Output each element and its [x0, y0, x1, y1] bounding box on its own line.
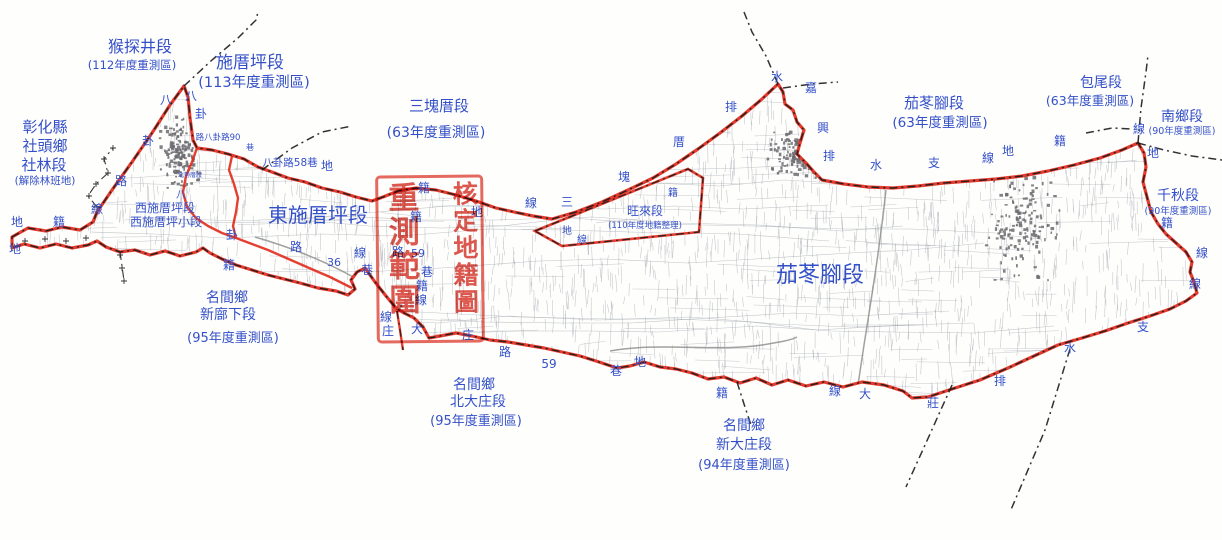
- town-block: [787, 151, 789, 154]
- town-block: [1017, 248, 1019, 251]
- town-block: [799, 160, 801, 164]
- town-block: [811, 158, 813, 161]
- town-block: [808, 138, 811, 141]
- town-block: [778, 158, 781, 160]
- boundary-annotation-char: 線: [354, 245, 366, 260]
- town-block: [1033, 176, 1037, 180]
- town-block: [1023, 228, 1026, 231]
- town-block: [172, 151, 174, 153]
- town-block: [364, 306, 367, 309]
- town-block: [184, 148, 186, 151]
- town-block: [1006, 247, 1008, 250]
- town-block: [1047, 224, 1050, 226]
- town-block: [188, 143, 191, 146]
- town-block: [1036, 241, 1039, 244]
- boundary-annotation-char: 線: [1133, 121, 1145, 136]
- town-block: [372, 320, 375, 322]
- town-block: [1035, 245, 1038, 249]
- town-block: [377, 325, 379, 327]
- town-block: [1034, 201, 1036, 203]
- town-block: [995, 227, 997, 231]
- label-xishicuoping-subsection: 西施厝坪小段: [130, 214, 202, 229]
- town-block: [809, 134, 812, 137]
- boundary-annotation-char: 巷: [421, 265, 433, 279]
- boundary-annotation-char: 水: [870, 158, 882, 172]
- town-block: [400, 304, 402, 307]
- town-block: [777, 146, 780, 149]
- town-block: [803, 145, 806, 148]
- town-block: [176, 130, 179, 132]
- town-block: [186, 161, 189, 164]
- town-block: [808, 142, 810, 144]
- town-block: [798, 168, 802, 171]
- town-block: [160, 145, 163, 149]
- town-block: [820, 147, 823, 150]
- town-block: [1041, 226, 1044, 228]
- town-block: [797, 165, 799, 168]
- parcel-fabric: [39, 70, 1222, 420]
- town-block: [1031, 198, 1034, 200]
- town-block: [1059, 210, 1061, 212]
- label-road-bagua90-lane: 巷: [246, 143, 254, 152]
- town-block: [786, 138, 789, 140]
- boundary-annotation-char: 路: [499, 344, 511, 359]
- town-block: [166, 174, 168, 176]
- town-block: [166, 130, 169, 133]
- boundary-annotation-char: 籍: [416, 278, 428, 293]
- town-block: [403, 331, 406, 334]
- boundary-annotation-char: 興: [817, 121, 829, 135]
- town-block: [802, 150, 804, 152]
- town-block: [180, 149, 182, 152]
- town-block: [392, 319, 394, 322]
- town-block: [194, 123, 196, 126]
- town-block: [1014, 274, 1016, 277]
- town-block: [175, 116, 178, 119]
- town-block: [371, 327, 374, 330]
- town-block: [1027, 205, 1030, 209]
- town-block: [1047, 204, 1050, 207]
- town-block: [371, 311, 374, 314]
- town-block: [1024, 219, 1026, 222]
- town-block: [812, 153, 814, 155]
- town-block: [791, 162, 793, 165]
- town-block: [789, 156, 791, 158]
- town-block: [1023, 198, 1026, 200]
- town-block: [1053, 195, 1057, 197]
- town-block: [396, 326, 398, 330]
- town-block: [815, 141, 818, 145]
- town-block: [173, 166, 176, 168]
- town-block: [801, 164, 804, 167]
- town-block: [164, 150, 166, 153]
- town-block: [789, 146, 791, 148]
- town-block: [1010, 182, 1013, 185]
- town-block: [781, 138, 783, 141]
- town-block: [178, 140, 181, 142]
- label-road-59b: 59: [541, 357, 556, 371]
- town-block: [816, 151, 818, 153]
- town-block: [169, 153, 171, 155]
- town-block: [376, 314, 378, 317]
- town-block: [374, 321, 376, 323]
- label-sankuaicuo-section: 三塊厝段: [409, 97, 469, 115]
- boundary-annotation-char: 八: [160, 93, 172, 107]
- town-block: [994, 279, 997, 281]
- town-block: [1039, 226, 1041, 228]
- label-shelin-section: 社林段: [21, 156, 66, 174]
- boundary-annotation-char: 線: [1189, 276, 1201, 291]
- admin-diagonal-south3: [1010, 349, 1070, 512]
- town-block: [1012, 229, 1015, 232]
- boundary-annotation-char: 嘉: [805, 81, 817, 95]
- town-block: [193, 124, 195, 126]
- town-block: [790, 171, 792, 173]
- town-block: [364, 316, 366, 319]
- town-block: [170, 160, 173, 164]
- town-block: [367, 323, 369, 325]
- town-block: [177, 183, 180, 186]
- label-beidazhuang-year: (95年度重測區): [430, 413, 522, 429]
- town-block: [1033, 210, 1036, 212]
- boundary-annotation-char: 籍: [668, 186, 678, 199]
- field-divider-line: [227, 311, 949, 323]
- town-block: [780, 166, 782, 169]
- town-block: [180, 185, 183, 187]
- town-block: [789, 140, 791, 142]
- town-block: [794, 138, 798, 140]
- town-block: [1023, 184, 1025, 186]
- field-divider-line: [229, 311, 973, 330]
- town-block: [812, 152, 815, 154]
- town-block: [1024, 177, 1028, 181]
- town-block: [401, 316, 403, 318]
- town-block: [1039, 230, 1042, 232]
- boundary-annotation-char: 庄: [462, 327, 474, 342]
- label-beishicuo: 北勢厝段: [178, 171, 202, 179]
- town-block: [805, 174, 808, 177]
- town-block: [809, 152, 811, 155]
- town-block: [401, 325, 403, 328]
- town-block: [786, 170, 788, 173]
- boundary-annotation-char: 線: [829, 383, 841, 398]
- town-block: [819, 148, 821, 152]
- town-block: [804, 143, 806, 146]
- town-block: [179, 129, 182, 131]
- survey-cross-mark: [121, 278, 127, 284]
- town-block: [810, 151, 813, 153]
- town-block: [173, 162, 175, 164]
- boundary-annotation-char: 籍: [716, 385, 728, 400]
- town-block: [1051, 232, 1053, 234]
- boundary-annotation-char: 籍: [1161, 215, 1173, 230]
- town-block: [376, 327, 378, 330]
- boundary-annotation-char: 塊: [618, 169, 630, 184]
- town-block: [997, 220, 999, 222]
- town-block: [804, 154, 806, 156]
- forest-release-boundary: [88, 148, 113, 207]
- label-wanglai-year: (110年度地籍整理): [608, 220, 682, 231]
- town-block: [774, 148, 776, 151]
- boundary-annotation-char: 卦: [226, 228, 238, 242]
- town-block: [176, 144, 179, 146]
- label-shicuoping-section: 施厝坪段: [216, 53, 284, 73]
- label-qiedongjiao-section: 茄苳腳段: [904, 94, 964, 112]
- boundary-annotation-char: 支: [1137, 320, 1149, 334]
- boundary-annotation-char: 地: [634, 355, 646, 369]
- boundary-annotation-char: 三: [561, 195, 573, 209]
- label-xindazhuang-section: 新大庄段: [716, 436, 772, 453]
- town-block: [1036, 275, 1039, 278]
- boundary-annotation-char: 路: [290, 239, 302, 254]
- field-divider-line: [226, 313, 923, 327]
- town-block: [810, 137, 812, 139]
- town-block: [779, 153, 782, 157]
- label-road-59a: 59: [411, 247, 425, 260]
- town-block: [814, 144, 817, 147]
- label-shicuoping-year: (113年度重測區): [198, 74, 310, 91]
- town-block: [181, 180, 183, 183]
- town-block: [988, 237, 990, 240]
- town-block: [1019, 189, 1021, 191]
- town-block: [160, 168, 162, 170]
- town-block: [1034, 234, 1038, 237]
- town-block: [780, 170, 782, 173]
- town-block: [815, 176, 817, 179]
- town-block: [159, 137, 162, 139]
- town-block: [179, 157, 182, 160]
- boundary-annotation-char: 卦: [195, 107, 207, 121]
- boundary-annotation-char: 大: [859, 387, 871, 401]
- town-block: [1030, 218, 1033, 221]
- town-block: [1002, 238, 1005, 240]
- town-block: [810, 161, 812, 163]
- town-block: [401, 315, 404, 317]
- town-block: [776, 149, 779, 152]
- town-block: [1031, 184, 1034, 186]
- boundary-annotation-char: 卦: [142, 134, 154, 148]
- label-beidazhuang-section: 北大庄段: [450, 393, 506, 410]
- boundary-annotation-char: 水: [1064, 341, 1076, 355]
- town-block: [374, 319, 377, 321]
- town-block: [1028, 214, 1031, 216]
- town-block: [774, 143, 777, 145]
- town-block: [394, 329, 397, 332]
- boundary-annotation-char: 線: [380, 309, 392, 324]
- town-block: [1018, 239, 1021, 242]
- boundary-annotation-char: 排: [823, 149, 835, 163]
- town-block: [1030, 192, 1033, 195]
- boundary-annotation-char: 線: [415, 292, 427, 307]
- town-block: [1015, 206, 1017, 209]
- boundary-annotation-char: 庄: [382, 323, 394, 338]
- boundary-annotation-char: 大: [411, 322, 423, 336]
- label-mingjian-1: 名間鄉: [206, 290, 248, 306]
- town-block: [168, 148, 170, 151]
- town-block: [770, 148, 773, 151]
- label-nanxiang-section: 南鄉段: [1161, 109, 1203, 125]
- label-wanglai-section: 旺來段: [627, 203, 663, 218]
- town-block: [166, 163, 168, 166]
- town-block: [784, 165, 787, 167]
- town-block: [797, 173, 799, 176]
- town-block: [188, 153, 191, 157]
- town-block: [1010, 237, 1014, 240]
- survey-cross-mark: [110, 145, 116, 151]
- boundary-annotation-char: 八: [185, 89, 197, 103]
- boundary-annotation-char: 巷: [361, 263, 373, 277]
- survey-cross-mark: [86, 193, 92, 199]
- town-block: [783, 156, 785, 159]
- town-block: [401, 326, 403, 328]
- town-block: [804, 154, 807, 156]
- town-block: [1055, 236, 1057, 239]
- town-block: [1014, 245, 1017, 248]
- town-block: [393, 319, 397, 321]
- boundary-annotation-char: 籍: [223, 257, 235, 272]
- label-qianqiu-section: 千秋段: [1157, 188, 1199, 204]
- town-block: [182, 147, 184, 150]
- town-block: [175, 154, 178, 158]
- town-block: [376, 321, 378, 323]
- town-block: [1049, 182, 1052, 184]
- survey-cross-mark: [119, 265, 125, 271]
- town-block: [833, 167, 836, 170]
- label-mingjian-2: 名間鄉: [453, 377, 495, 393]
- town-block: [192, 163, 195, 166]
- boundary-annotation-char: 線: [982, 150, 994, 165]
- town-block: [810, 157, 813, 159]
- map-drawing: 猴探井段(112年度重測區)施厝坪段(113年度重測區)彰化縣社頭鄉社林段(解除…: [0, 0, 1222, 540]
- field-divider-line: [143, 205, 828, 221]
- survey-cross-mark: [83, 235, 89, 241]
- boundary-annotation-char: 支: [928, 156, 940, 170]
- town-block: [371, 317, 374, 319]
- boundary-annotation-char: 路: [115, 173, 127, 188]
- town-block: [169, 128, 173, 130]
- town-block: [177, 146, 181, 149]
- label-dongshicuoping-section: 東施厝坪段: [268, 203, 368, 227]
- town-block: [813, 133, 815, 135]
- town-block: [1040, 214, 1042, 217]
- town-block: [792, 156, 796, 160]
- town-block: [191, 149, 193, 152]
- town-block: [399, 316, 402, 318]
- town-block: [991, 214, 993, 216]
- label-houtanjing-section: 猴探井段: [108, 37, 172, 56]
- town-block: [375, 310, 377, 313]
- boundary-annotation-char: 地: [9, 242, 21, 256]
- cadastral-map-canvas: 猴探井段(112年度重測區)施厝坪段(113年度重測區)彰化縣社頭鄉社林段(解除…: [0, 0, 1222, 540]
- boundary-annotation-char: 八: [176, 190, 186, 201]
- town-block: [793, 173, 797, 176]
- town-block: [1012, 225, 1015, 227]
- town-block: [818, 160, 821, 163]
- town-block: [176, 123, 178, 126]
- boundary-annotation-char: 線: [1196, 245, 1208, 260]
- town-block: [782, 147, 786, 150]
- town-block: [159, 130, 162, 133]
- town-block: [174, 158, 176, 161]
- label-road-36: 36: [327, 256, 341, 269]
- town-block: [378, 330, 380, 333]
- town-block: [1016, 211, 1019, 213]
- town-block: [192, 147, 194, 149]
- town-block: [1019, 232, 1022, 235]
- label-houtanjing-year: (112年度重測區): [88, 58, 176, 72]
- town-block: [367, 310, 371, 313]
- town-block: [1000, 278, 1003, 281]
- town-block: [996, 237, 999, 239]
- town-block: [1008, 246, 1010, 250]
- town-block: [174, 181, 176, 183]
- boundary-annotation-char: 線: [525, 195, 537, 210]
- label-baowei-section: 包尾段: [1080, 75, 1122, 91]
- town-block: [1008, 233, 1011, 235]
- town-block: [767, 158, 770, 161]
- town-block: [1030, 221, 1033, 225]
- town-block: [770, 143, 772, 147]
- town-block: [808, 153, 810, 155]
- town-block: [174, 172, 178, 174]
- town-block: [1047, 193, 1049, 196]
- town-block: [771, 139, 773, 141]
- town-block: [172, 133, 175, 135]
- town-block: [813, 142, 816, 144]
- town-block: [392, 320, 394, 323]
- town-block: [773, 132, 775, 134]
- town-block: [176, 149, 178, 152]
- town-block: [1019, 216, 1021, 219]
- town-block: [167, 156, 169, 159]
- boundary-annotation-char: 籍: [410, 209, 422, 224]
- town-block: [182, 130, 184, 134]
- town-block: [380, 305, 383, 309]
- town-block: [1056, 233, 1058, 236]
- boundary-annotation-char: 地: [562, 224, 572, 237]
- boundary-annotation-char: 路: [392, 244, 404, 259]
- town-block: [168, 133, 171, 136]
- boundary-annotation-char: 籍: [418, 180, 430, 195]
- town-block: [375, 313, 377, 316]
- town-block: [1005, 204, 1008, 206]
- label-nanxiang-year: (90年度重測區): [1148, 125, 1215, 137]
- town-block: [403, 327, 407, 329]
- town-block: [183, 168, 185, 171]
- town-block: [999, 194, 1003, 197]
- town-block: [1031, 212, 1033, 215]
- label-xishicuoping-section: 西施厝坪段: [135, 200, 195, 215]
- town-block: [173, 128, 175, 131]
- label-changhua-county: 彰化縣: [22, 118, 67, 136]
- boundary-annotation-char: 排: [725, 100, 737, 114]
- town-block: [377, 327, 379, 329]
- town-block: [402, 316, 404, 318]
- town-block: [184, 141, 187, 143]
- label-xindazhuang-year: (94年度重測區): [698, 457, 790, 473]
- label-sankuaicuo-year: (63年度重測區): [387, 125, 486, 141]
- town-block: [1033, 230, 1036, 232]
- boundary-annotation-char: 莊: [927, 396, 939, 410]
- town-block: [816, 137, 818, 139]
- town-block: [1010, 197, 1013, 199]
- boundary-annotation-char: 籍: [1054, 133, 1066, 148]
- town-block: [791, 142, 793, 145]
- town-block: [1003, 231, 1005, 233]
- town-block: [1016, 224, 1018, 226]
- label-qiedongjiao-year: (63年度重測區): [892, 115, 987, 131]
- town-block: [1037, 236, 1040, 239]
